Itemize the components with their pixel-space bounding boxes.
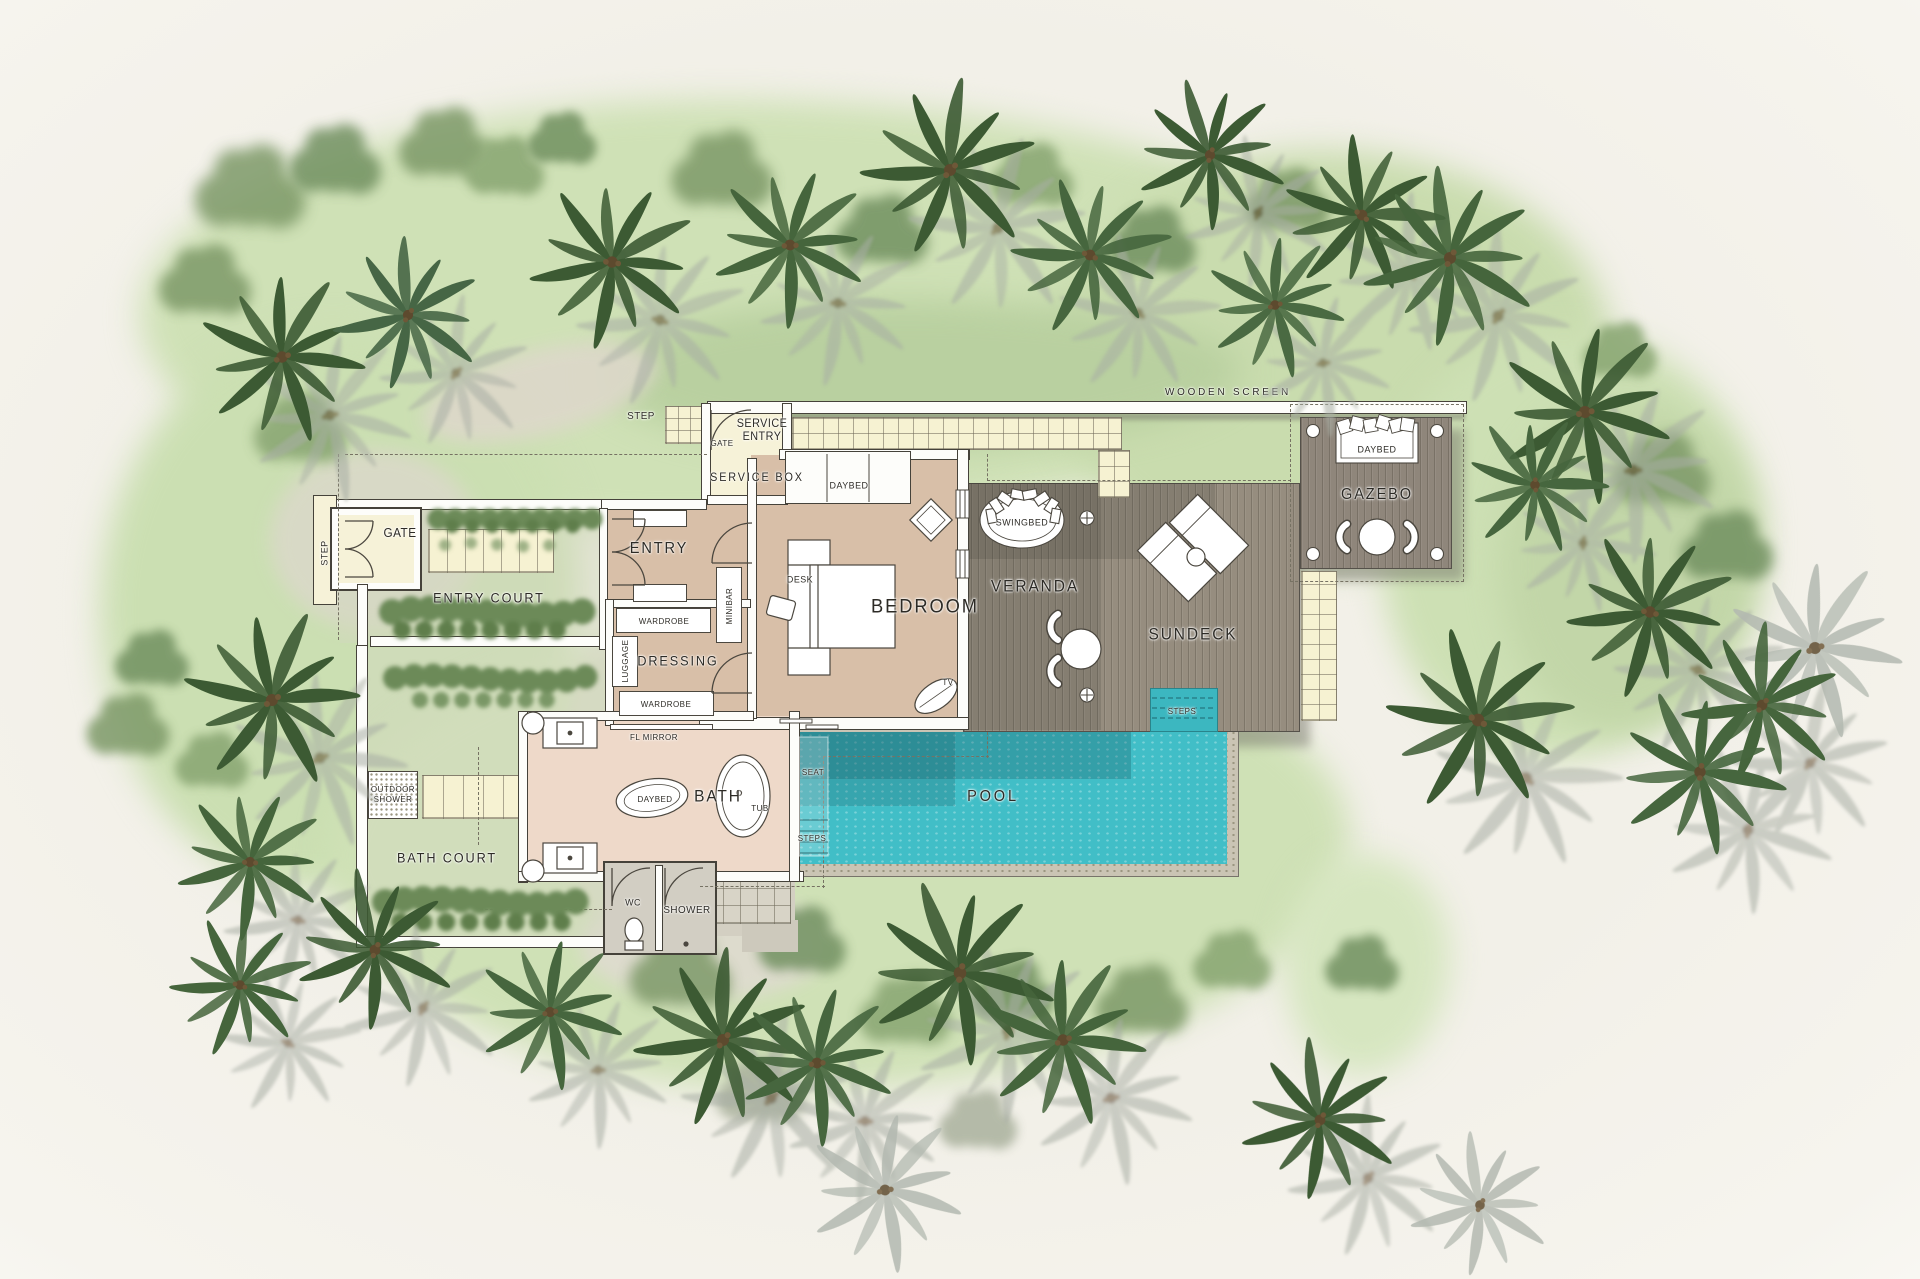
gazebo-label: GAZEBO [1341, 486, 1413, 504]
bath-court-south-wall [356, 936, 610, 948]
bath-court-label: BATH COURT [397, 851, 497, 866]
steps-label-pool: STEPS [798, 833, 827, 843]
wc-label: WC [625, 898, 641, 909]
boundary-dashed-line [338, 454, 339, 640]
swingbed-label: SWINGBED [996, 518, 1048, 529]
boundary-dashed-line [823, 756, 989, 757]
bath-label: BATH [694, 788, 742, 807]
outdoor-shower-label: OUTDOOR SHOWER [370, 785, 415, 805]
pool-label: POOL [967, 788, 1019, 806]
wc-shower-divider [655, 865, 663, 951]
bath-court-west-wall [356, 645, 368, 947]
bedroom-label: BEDROOM [871, 596, 979, 619]
bedroom-east-wall [957, 449, 969, 730]
wooden-screen-label: WOODEN SCREEN [1165, 386, 1291, 398]
minibar-label: MINIBAR [724, 588, 734, 625]
paving [742, 920, 798, 952]
tub-label: TUB [751, 803, 768, 813]
boundary-dashed-line [987, 480, 1291, 481]
gazebo-path-pavers [1301, 571, 1337, 721]
service-gate-label: GATE [710, 438, 733, 448]
lawn-patch [1285, 855, 1450, 1075]
boundary-dashed-line [987, 732, 988, 758]
palm-tree-icon [142, 884, 340, 1083]
boundary-dashed-line [987, 454, 988, 481]
veranda-label: VERANDA [991, 578, 1079, 597]
gate-label: GATE [383, 526, 416, 540]
full-length-mirror [610, 724, 713, 730]
entry-label: ENTRY [630, 540, 689, 558]
tv-label: TV [942, 677, 953, 687]
step-label-top: STEP [627, 410, 655, 422]
boundary-dashed-line [478, 747, 479, 845]
entry-court-label: ENTRY COURT [433, 591, 545, 606]
wing-north-wall [601, 499, 707, 510]
wardrobe-label: WARDROBE [641, 699, 692, 709]
entry-console [633, 510, 687, 527]
service-walkway-pavers [792, 417, 1122, 450]
entry-console [633, 584, 687, 602]
bedroom-west-wall [747, 458, 757, 719]
service-entry-label: SERVICE ENTRY [733, 418, 791, 444]
sundeck-label: SUNDECK [1148, 626, 1237, 645]
dressing-label: DRESSING [637, 654, 718, 669]
boundary-dashed-line [345, 454, 707, 455]
daybed-label-bath: DAYBED [637, 794, 672, 804]
bath-east-wall [789, 711, 800, 882]
garden-wall [357, 584, 368, 648]
seat-label: SEAT [802, 767, 824, 777]
boundary-dashed-line [700, 886, 825, 887]
service-box-label: SERVICE BOX [710, 472, 804, 484]
step-label-gate: STEP [320, 540, 331, 565]
wardrobe-label: WARDROBE [639, 616, 690, 626]
lawn-shade-patch [1500, 400, 1760, 730]
entry-court-path [428, 529, 554, 573]
shower-label: SHOWER [663, 904, 710, 916]
fl-mirror-label: FL MIRROR [630, 732, 678, 742]
daybed-label-gazebo: DAYBED [1358, 445, 1397, 456]
bath-court-path [422, 775, 524, 819]
villa-floor-plan: STEP GATE SERVICE ENTRY SERVICE BOX WOOD… [0, 0, 1920, 1279]
step-pavers [665, 406, 703, 444]
walkway-pavers [1098, 450, 1130, 498]
desk-label: DESK [787, 575, 813, 586]
boundary-dashed-line [480, 909, 612, 910]
luggage-label: LUGGAGE [620, 640, 630, 683]
bath-west-wall [518, 711, 528, 883]
entry-court-south-wall [370, 636, 610, 647]
steps-label-sundeck: STEPS [1168, 706, 1197, 716]
daybed-label-bedroom: DAYBED [830, 481, 869, 492]
